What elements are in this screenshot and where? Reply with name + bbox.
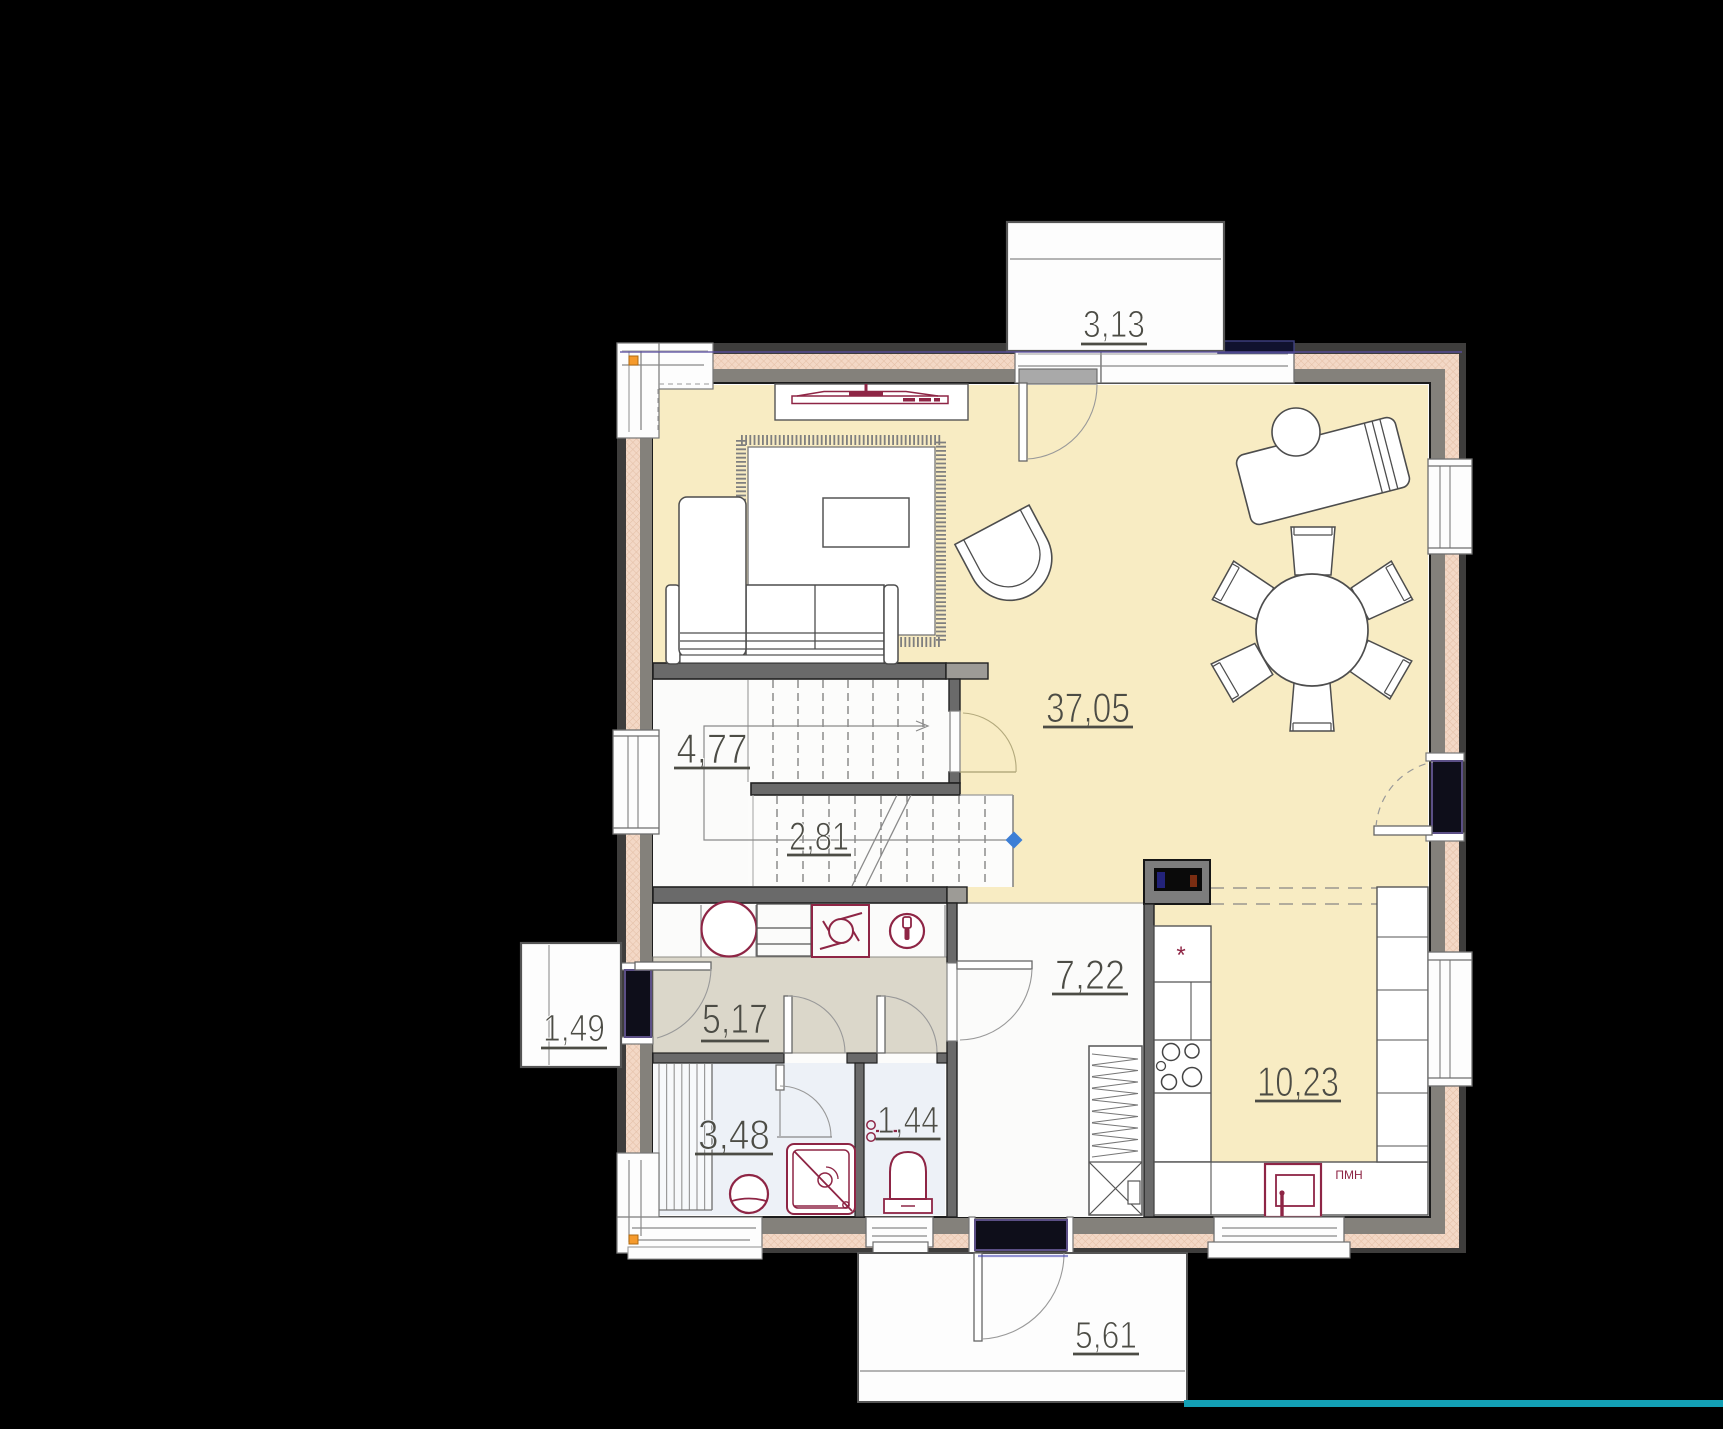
svg-text:10,23: 10,23 [1257,1058,1339,1105]
svg-text:*: * [1176,942,1185,969]
svg-text:ПМН: ПМН [1335,1168,1362,1182]
svg-text:37,05: 37,05 [1046,684,1130,731]
svg-text:4,77: 4,77 [677,725,748,772]
svg-text:5,61: 5,61 [1075,1315,1137,1357]
svg-text:1,49: 1,49 [543,1008,605,1050]
svg-text:3,48: 3,48 [698,1111,770,1158]
svg-text:3,13: 3,13 [1083,304,1145,346]
svg-text:5,17: 5,17 [702,995,768,1042]
svg-text:7,22: 7,22 [1055,951,1125,998]
svg-text:2,81: 2,81 [789,815,849,859]
svg-text:1,44: 1,44 [877,1100,939,1142]
